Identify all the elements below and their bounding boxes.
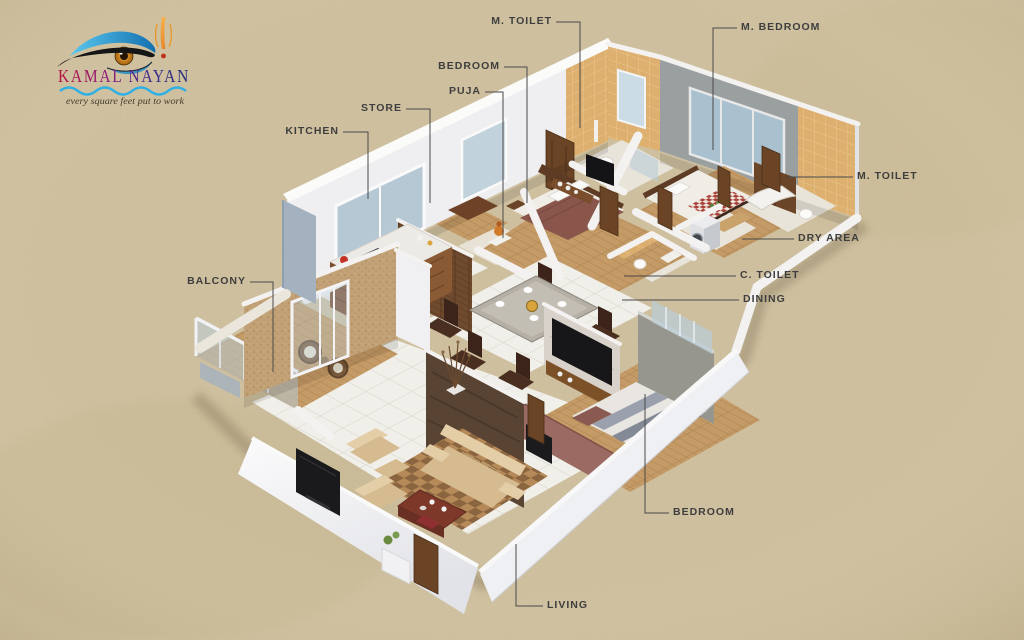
label-dry-area: DRY AREA (798, 232, 860, 244)
door (600, 186, 618, 236)
wc (634, 259, 646, 269)
brand-tagline: every square feet put to work (66, 96, 185, 107)
door (528, 394, 544, 444)
bindi-dot (161, 54, 166, 59)
door (762, 146, 780, 192)
label-m-toilet-right: M. TOILET (857, 170, 918, 182)
frosted-window (618, 70, 645, 128)
door (718, 166, 730, 208)
wc (800, 209, 813, 219)
label-puja: PUJA (385, 85, 481, 97)
label-store: STORE (306, 102, 402, 114)
brand-name: KAMAL NAYAN (58, 66, 190, 86)
label-dining: DINING (743, 293, 786, 305)
door (658, 186, 672, 230)
label-c-toilet: C. TOILET (740, 269, 800, 281)
label-bedroom-top: BEDROOM (404, 60, 500, 72)
end-pillar (396, 252, 430, 352)
poster: KAMAL NAYAN every square feet put to wor… (0, 0, 1024, 640)
label-balcony: BALCONY (150, 275, 246, 287)
label-m-bedroom: M. BEDROOM (741, 21, 820, 33)
slate-wall (283, 200, 316, 304)
center-bowl (527, 301, 538, 312)
label-living: LIVING (547, 599, 588, 611)
label-kitchen: KITCHEN (243, 125, 339, 137)
label-bedroom-bottom: BEDROOM (673, 506, 735, 518)
floorplan-rendering: KAMAL NAYAN every square feet put to wor… (0, 0, 1024, 640)
label-m-toilet-top: M. TOILET (456, 15, 552, 27)
